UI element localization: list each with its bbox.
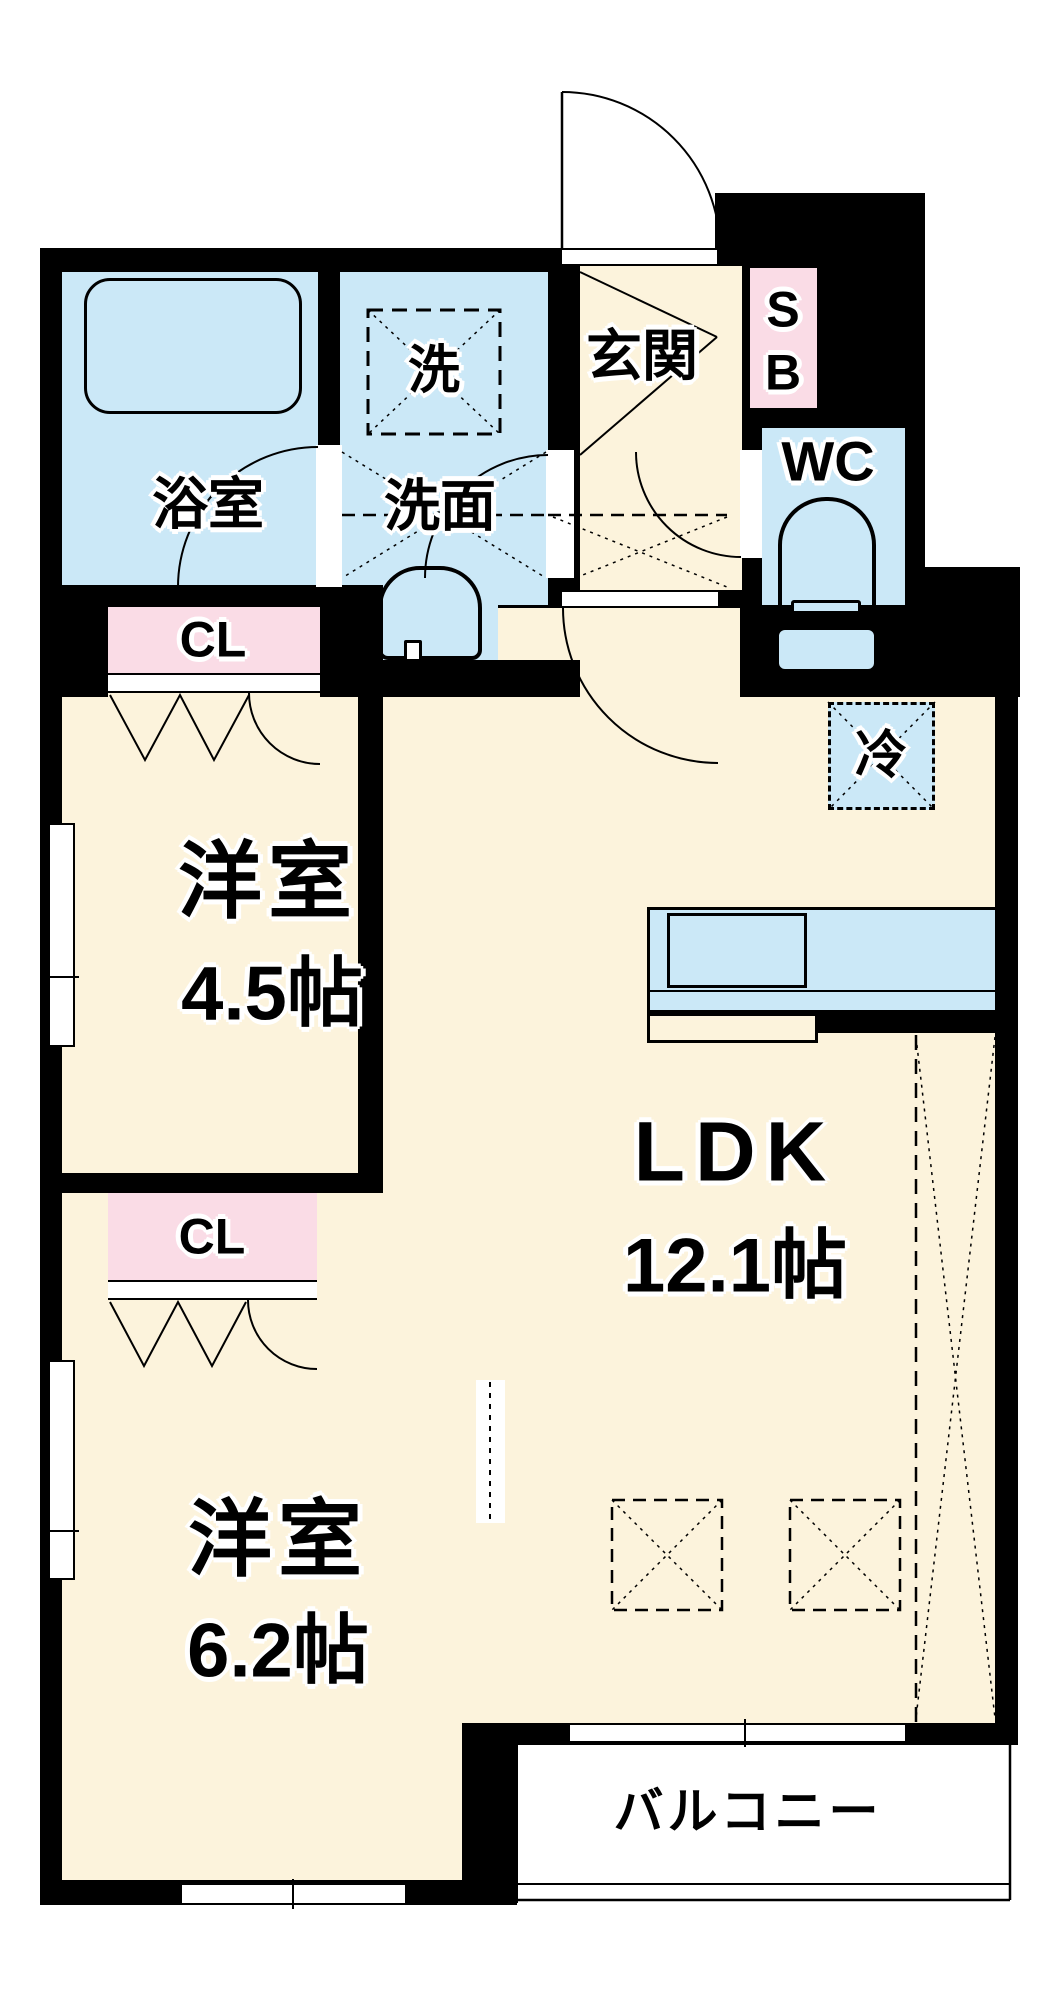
window-left-upper [48,823,75,1047]
toilet-tank [775,626,878,673]
label-room-upper-size: 4.5帖 [181,946,363,1045]
label-closet-lower: CL [179,1205,246,1270]
room-entrance-hall [580,266,742,590]
label-room-lower-name: 洋室 [188,1485,368,1594]
hall-pocket-upper [498,608,740,660]
room-ldk [383,697,995,1723]
bathtub [84,278,302,414]
ldk-door-threshold [562,590,718,608]
closet-upper-track [108,673,320,693]
label-closet-upper: CL [180,608,247,673]
kitchen-sink [667,913,807,988]
kitchen-counter-edge [647,990,995,992]
label-fridge: 冷 [855,723,907,791]
window-left-lower [48,1360,75,1580]
label-shoe-box: S B [765,279,801,404]
label-laundry: 洗 [408,338,460,406]
label-entrance: 玄関 [586,321,698,394]
washroom-door-gap [546,450,574,578]
label-ldk-name: LDK [634,1097,837,1206]
closet-lower-track [108,1280,317,1300]
toilet-seat-hinge [791,600,861,614]
label-washroom: 洗面 [384,471,496,544]
hall-pocket-lower [580,660,740,697]
kitchen-cabinet [647,1013,818,1043]
label-bathroom: 浴室 [152,469,264,542]
label-room-upper-name: 洋室 [178,827,358,936]
wall-balcony-left-block [462,1723,518,1903]
floor-plan: 浴室 洗 洗面 玄関 S B WC 冷 CL CL 洋室 4.5帖 LDK 12… [0,0,1064,2000]
wash-basin [378,566,482,660]
wall-kitchen-stub [818,1013,1018,1033]
label-wc: WC [781,426,874,499]
label-room-lower-size: 6.2帖 [187,1603,369,1702]
entrance-door-arc [562,92,720,250]
sliding-door-gap [476,1380,505,1523]
bathroom-door-gap [316,445,342,587]
window-bottom [180,1883,407,1905]
entrance-threshold [562,248,717,266]
wc-door-gap [740,450,762,558]
wall-top-right-block [715,193,925,268]
label-balcony: バルコニー [614,1780,883,1845]
basin-faucet [404,640,422,662]
label-ldk-size: 12.1帖 [623,1218,847,1317]
wall-cl1-right [320,607,358,697]
window-balcony [568,1723,907,1743]
wall-cl1-left [62,607,108,697]
